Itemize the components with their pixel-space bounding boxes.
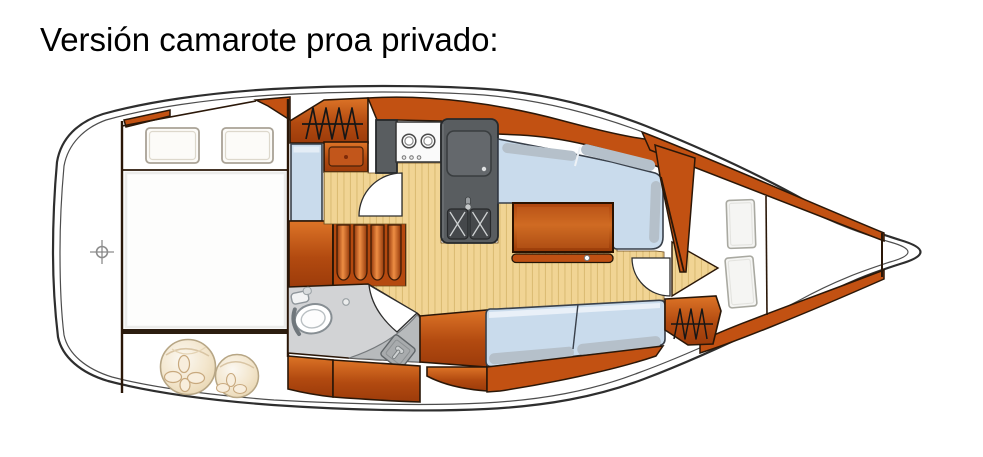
aft-berth-mattress	[123, 170, 288, 330]
saloon-table	[512, 203, 613, 263]
locker-beside-head	[420, 310, 487, 367]
vberth-pillow-bottom	[725, 256, 757, 308]
stowed-bag-large	[161, 340, 216, 395]
page: Versión camarote proa privado:	[0, 0, 983, 457]
galley-side-panel	[376, 120, 397, 173]
table-fiddle-rail	[512, 254, 613, 263]
vberth-foot-line	[766, 196, 767, 315]
rail-end-cap	[584, 255, 589, 260]
stove	[396, 122, 441, 162]
cover-knob	[482, 167, 486, 171]
drain-icon	[343, 299, 350, 306]
head-locker-aft	[288, 356, 333, 397]
galley-counter	[441, 119, 498, 243]
drawer-knob	[344, 155, 348, 159]
boat-floorplan	[0, 0, 983, 457]
head-locker-mid	[333, 360, 420, 402]
aft-pillow-right	[222, 128, 273, 163]
drawer-cabinet	[324, 142, 368, 172]
aft-pillow-left	[146, 128, 199, 163]
aft-berth-foot-board	[122, 329, 288, 334]
companionway-side-locker	[289, 221, 333, 288]
stowed-bag-small	[216, 355, 259, 398]
vberth-pillow-top	[726, 200, 756, 249]
faucet-icon	[465, 197, 471, 210]
nav-seat	[291, 144, 322, 221]
companionway-steps	[333, 221, 406, 288]
stove-knobs	[402, 156, 421, 160]
